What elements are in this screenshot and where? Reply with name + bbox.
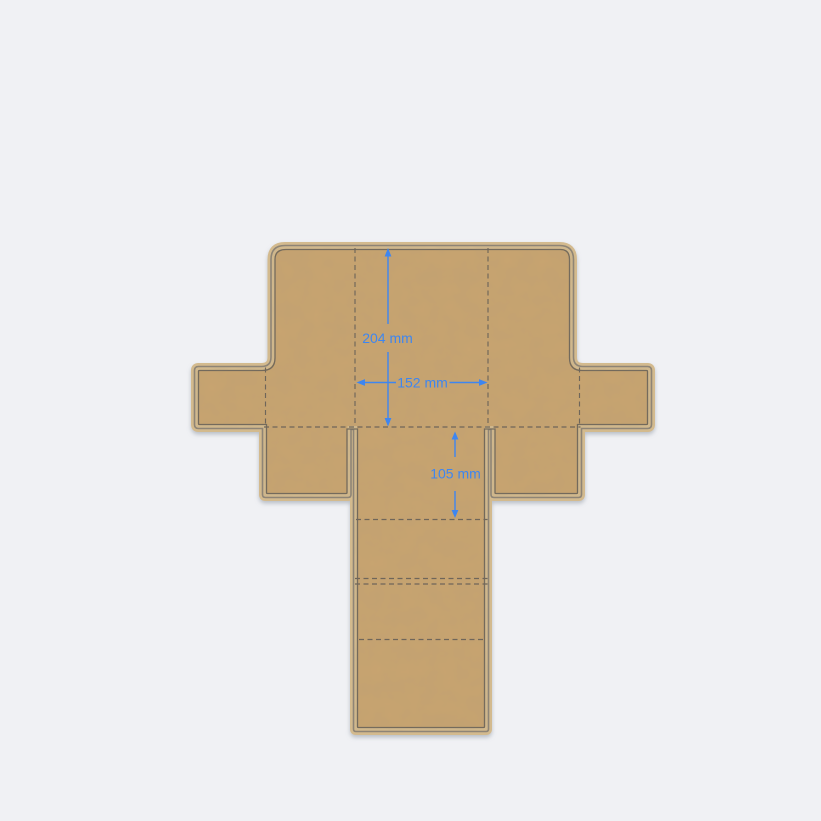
kraft-texture (185, 238, 660, 738)
design-canvas[interactable]: 204 mm 152 mm 105 mm (0, 0, 821, 821)
dimension-length-label[interactable]: 204 mm (362, 330, 413, 346)
dieline-canvas: 204 mm 152 mm 105 mm (0, 0, 821, 821)
dimension-depth-label[interactable]: 105 mm (430, 465, 481, 481)
dimension-width-label[interactable]: 152 mm (397, 374, 448, 390)
